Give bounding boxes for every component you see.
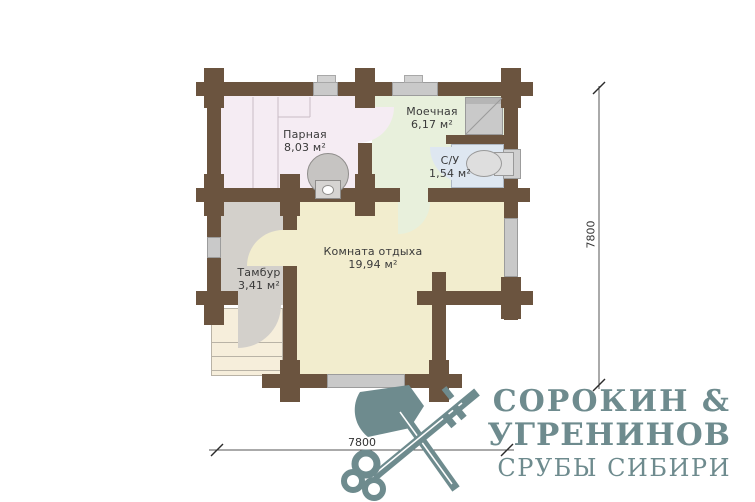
stove-firebox-door [322, 185, 334, 195]
shower-top-edge [466, 98, 502, 104]
room-name: Парная [283, 128, 327, 141]
dimension-bottom-label: 7800 [332, 436, 392, 449]
label-moechnaya: Моечная 6,17 м² [372, 106, 492, 132]
floor-plan-canvas: Парная 8,03 м² Моечная 6,17 м² С/У 1,54 … [0, 0, 755, 502]
log-post [280, 174, 300, 216]
brand-line-3: СРУБЫ СИБИРИ [497, 456, 731, 480]
log-post [355, 68, 375, 108]
brand-line-2: УГРЕНИНОВ [487, 420, 731, 451]
window-sill [404, 75, 423, 83]
dimension-right-label: 7800 [585, 205, 598, 265]
log-post [501, 68, 521, 108]
window [313, 82, 338, 96]
window [392, 82, 438, 96]
room-area: 8,03 м² [284, 141, 326, 154]
log-post [204, 291, 224, 325]
log-post [204, 174, 224, 216]
room-name: Тамбур [237, 266, 280, 279]
porch-steps [212, 356, 282, 357]
log-post [204, 68, 224, 108]
door-opening [238, 291, 283, 305]
brand-line-1: СОРОКИН & [493, 387, 731, 417]
room-area: 6,17 м² [411, 118, 453, 131]
log-post [429, 360, 449, 402]
room-name: Комната отдыха [324, 245, 423, 258]
window [207, 237, 221, 258]
room-area: 19,94 м² [348, 258, 397, 271]
room-area: 3,41 м² [238, 279, 280, 292]
porch-steps [212, 370, 282, 371]
room-name: Моечная [406, 105, 457, 118]
door-opening [283, 230, 297, 266]
log-post [501, 277, 521, 319]
room-area: 1,54 м² [429, 167, 471, 180]
wall-su-partition [446, 135, 504, 144]
log-post [280, 360, 300, 402]
window [504, 218, 518, 277]
room-name: С/У [441, 154, 460, 167]
log-post [355, 174, 375, 216]
label-parnaya: Парная 8,03 м² [245, 129, 365, 155]
window-sill [317, 75, 336, 83]
label-tambur: Тамбур 3,41 м² [199, 267, 319, 293]
label-su: С/У 1,54 м² [390, 155, 510, 181]
door-opening [398, 188, 428, 202]
label-rest: Комната отдыха 19,94 м² [313, 246, 433, 272]
window [327, 374, 405, 388]
